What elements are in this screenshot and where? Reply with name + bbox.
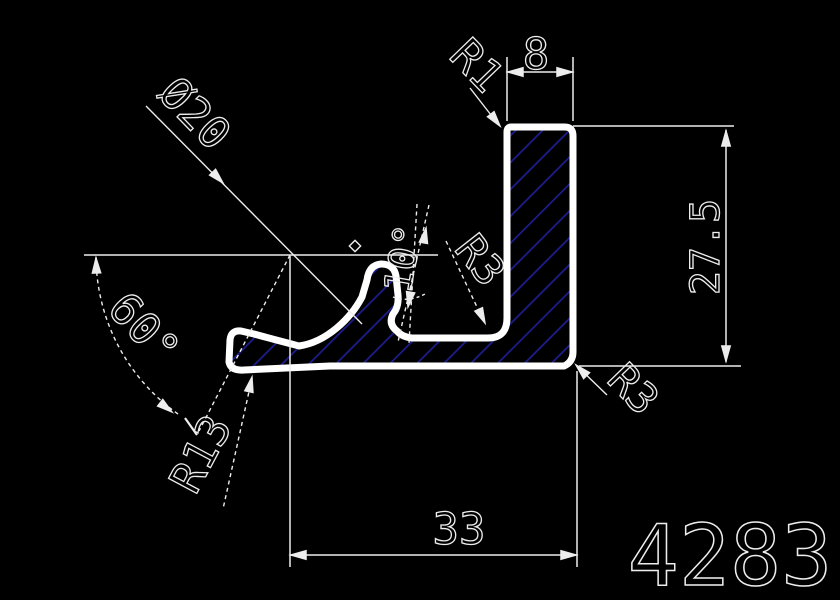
dim-right-height-label: 27.5 bbox=[683, 199, 729, 295]
dim-top-width-label: 8 bbox=[523, 29, 550, 80]
dim-bottom-width-label: 33 bbox=[433, 504, 486, 555]
cad-drawing: 8 27.5 33 Ø20 R1 60° R13 R3 R3 10 bbox=[0, 0, 840, 600]
part-number: 4283 bbox=[628, 507, 833, 600]
cad-canvas: 8 27.5 33 Ø20 R1 60° R13 R3 R3 10 bbox=[0, 0, 840, 600]
